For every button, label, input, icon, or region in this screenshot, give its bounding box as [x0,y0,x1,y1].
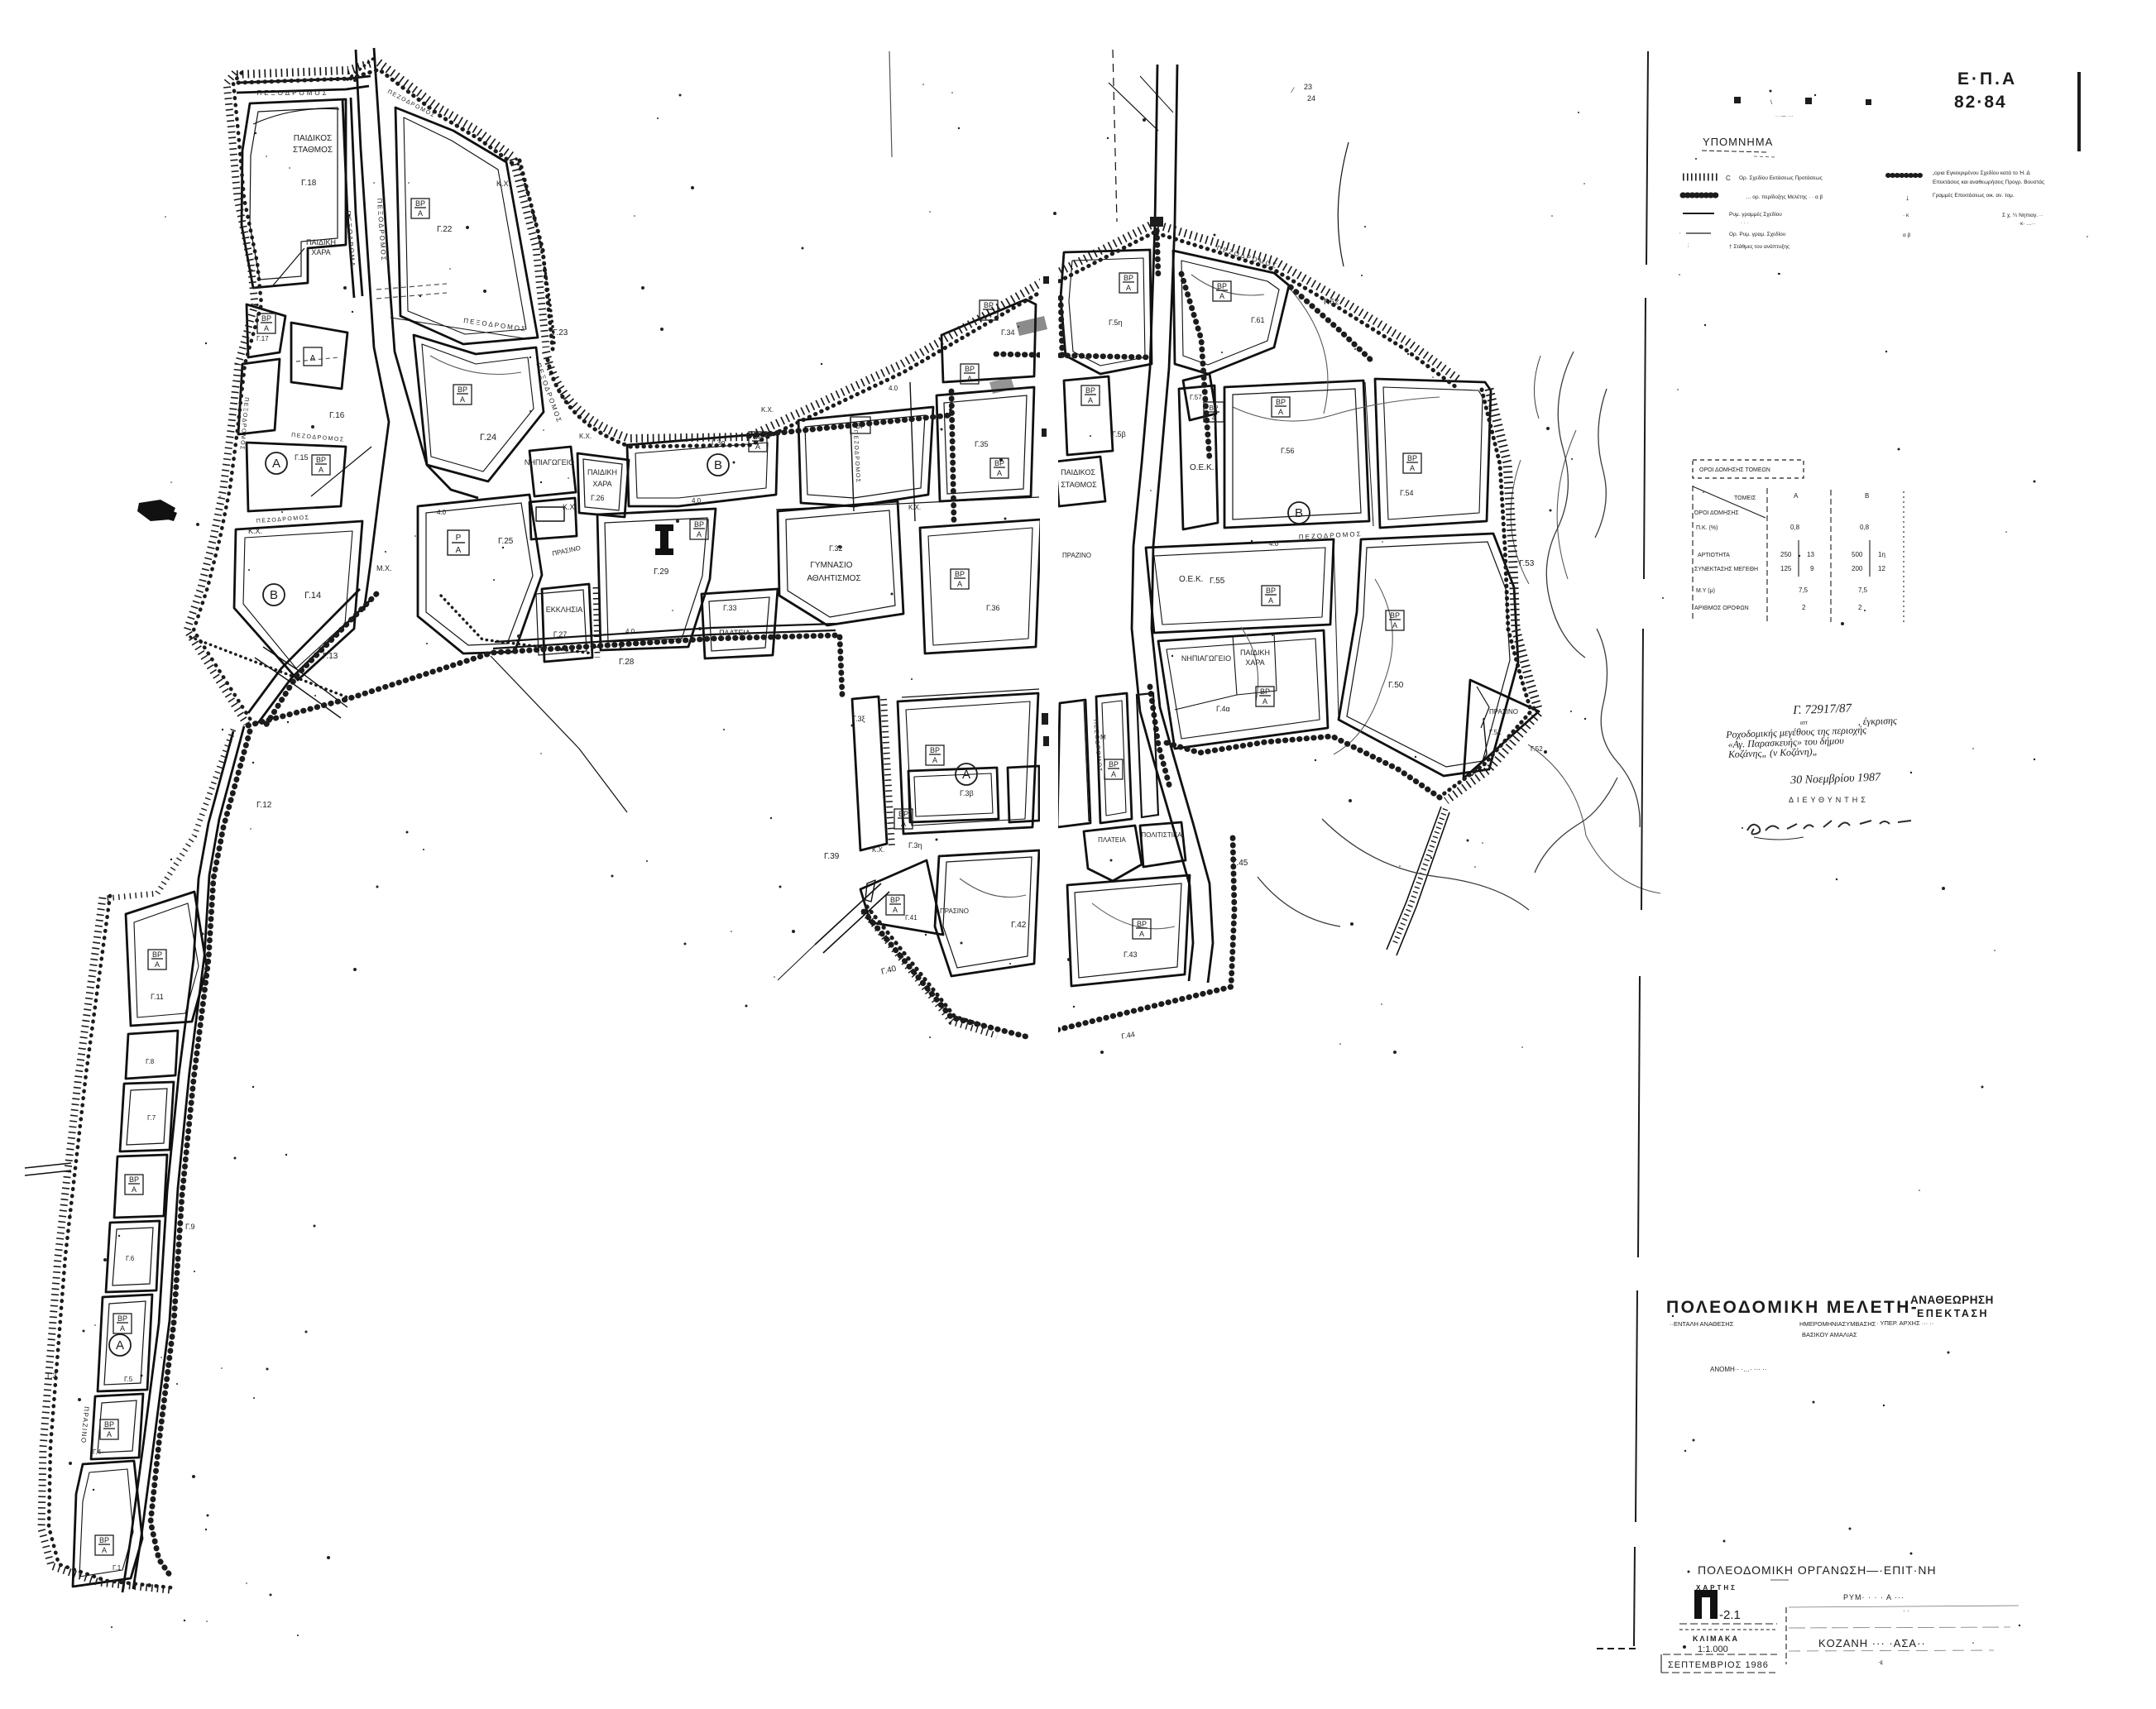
svg-text:ΠΑΙΔΙΚΗ: ΠΑΙΔΙΚΗ [1240,649,1270,657]
svg-text:ΠΑΙΔΙΚΗ: ΠΑΙΔΙΚΗ [587,468,617,476]
svg-text:Α: Α [1794,492,1799,500]
svg-text:ΑΡΙΘΜΟΣ ΟΡΟΦΩΝ: ΑΡΙΘΜΟΣ ΟΡΟΦΩΝ [1694,606,1749,611]
svg-text:125: 125 [1780,565,1792,572]
svg-text:Ορ. Σχεδίου Εκτάσεως Προτάσεως: Ορ. Σχεδίου Εκτάσεως Προτάσεως [1739,175,1823,181]
svg-text:Γ.57: Γ.57 [1190,394,1202,401]
svg-text:Γ.50: Γ.50 [1388,681,1404,690]
svg-text:ΠΑΙΔΙΚΗ: ΠΑΙΔΙΚΗ [306,238,336,247]
svg-text:Γ.13: Γ.13 [323,652,338,661]
svg-text:Κ.Χ.: Κ.Χ. [761,406,774,414]
svg-text:ΠΑΙΔΙΚΟΣ: ΠΑΙΔΙΚΟΣ [1061,468,1095,476]
svg-text:2: 2 [1802,604,1806,611]
svg-text:Γ.26: Γ.26 [591,494,604,502]
svg-text:O.E.K.: O.E.K. [1190,463,1214,472]
svg-text:Γ.5η: Γ.5η [1109,318,1122,327]
svg-text:↓: ↓ [1905,194,1909,203]
svg-text:Γ.5β: Γ.5β [1112,430,1126,438]
svg-text:ΠΛΑΤΕΙΑ: ΠΛΑΤΕΙΑ [719,629,750,637]
svg-text:Γ.28: Γ.28 [619,658,635,667]
svg-text:ΠΟΛΕΟΔΟΜΙΚΗ ΜΕΛΕΤΗ-: ΠΟΛΕΟΔΟΜΙΚΗ ΜΕΛΕΤΗ- [1666,1298,1919,1317]
svg-text:Σ χ. ¼ Νηπιαγ. ··: Σ χ. ¼ Νηπιαγ. ·· [2002,213,2043,218]
svg-text:ΣΕΠΤΕΜΒΡΙΟΣ 1986: ΣΕΠΤΕΜΒΡΙΟΣ 1986 [1668,1660,1769,1670]
svg-text:Γ.43: Γ.43 [1124,950,1137,959]
svg-text:·ε: ·ε [1878,1659,1884,1666]
svg-text:Γ.35: Γ.35 [975,440,988,448]
svg-text:M.X.: M.X. [376,564,392,572]
svg-text:Γ.22: Γ.22 [437,225,453,234]
svg-text:α β: α β [1903,232,1911,238]
svg-text:4.0: 4.0 [1269,540,1279,548]
svg-text:Π.Κ. (%): Π.Κ. (%) [1696,525,1718,531]
svg-text:Γ.17: Γ.17 [256,335,269,342]
svg-text:C: C [1726,175,1731,182]
svg-text:4.0: 4.0 [692,497,702,505]
svg-text:Γ.3β: Γ.3β [960,789,974,797]
svg-text:ΟΡΟΙ ΔΟΜΗΣΗΣ ΤΟΜΕΩΝ: ΟΡΟΙ ΔΟΜΗΣΗΣ ΤΟΜΕΩΝ [1699,467,1770,473]
svg-text:Γ.42: Γ.42 [1011,921,1027,930]
svg-text:ΣΥΝΕΚΤΑΣΗΣ ΜΕΓΕΘΗ: ΣΥΝΕΚΤΑΣΗΣ ΜΕΓΕΘΗ [1694,567,1758,572]
svg-text:Γ.33: Γ.33 [723,604,736,612]
svg-text:1:1.000: 1:1.000 [1698,1644,1728,1654]
svg-text:12: 12 [1878,565,1885,572]
svg-text:ΕΠΕΚΤΑΣΗ: ΕΠΕΚΤΑΣΗ [1917,1308,1989,1319]
svg-text:Γραμμές Επεκτάσεως οικ. αν. το: Γραμμές Επεκτάσεως οικ. αν. τομ. [1933,192,2015,199]
svg-text:ΠΟΛΙΤΙΣΤΙΚΑ: ΠΟΛΙΤΙΣΤΙΚΑ [1141,831,1182,839]
svg-text:ΧΑΡΑ: ΧΑΡΑ [311,248,330,256]
svg-text:Γ.15: Γ.15 [295,453,308,462]
svg-text:Γ.56: Γ.56 [1281,447,1294,455]
svg-text:ΕΚΚΛΗΣΙΑ: ΕΚΚΛΗΣΙΑ [546,606,583,614]
svg-text:ΚΛΙΜΑΚΑ: ΚΛΙΜΑΚΑ [1693,1635,1739,1643]
svg-text:Γ.12: Γ.12 [256,801,272,810]
svg-text:4.0: 4.0 [437,509,447,516]
svg-text:ΠΟΛΕΟΔΟΜΙΚΗ ΟΡΓΑΝΩΣΗ—·ΕΠΙΤ·ΝΗ: ΠΟΛΕΟΔΟΜΙΚΗ ΟΡΓΑΝΩΣΗ—·ΕΠΙΤ·ΝΗ [1698,1563,1937,1577]
svg-text:ΑΡΤΙΟΤΗΤΑ: ΑΡΤΙΟΤΗΤΑ [1698,553,1730,558]
svg-text:Γ.36: Γ.36 [986,604,999,612]
svg-text:Β: Β [1865,492,1869,500]
svg-text:ΠΡΑΣΙΝΟ: ΠΡΑΣΙΝΟ [1489,708,1518,716]
svg-text:Γ.39: Γ.39 [824,852,840,861]
svg-text:ΓΥΜΝΑΣΙΟ: ΓΥΜΝΑΣΙΟ [810,561,852,570]
svg-text:· ΥΠΕΡ. ΑΡΧΗΣ ··· ··: · ΥΠΕΡ. ΑΡΧΗΣ ··· ·· [1876,1319,1933,1327]
svg-text:P: P [456,534,462,543]
svg-text:Ορ. Ρυμ. γραμ. Σχεδίου: Ορ. Ρυμ. γραμ. Σχεδίου [1729,231,1786,237]
svg-text:·· ·─· ···: ·· ·─· ··· [1775,114,1794,119]
svg-text:Γ.45: Γ.45 [1233,859,1248,868]
svg-text:ʽ: ʽ [1679,233,1680,238]
svg-text:·κ· …··: ·κ· …·· [2019,221,2035,227]
svg-text:ΠΡΑΣΙΝΟ: ΠΡΑΣΙΝΟ [940,907,969,915]
svg-text:\: \ [1770,100,1772,106]
svg-text:ΠΕΞΟΔΡΟΜΟΣ: ΠΕΞΟΔΡΟΜΟΣ [256,89,328,97]
svg-text:ΧΑΡΑ: ΧΑΡΑ [1245,658,1264,667]
svg-text:Γ.5: Γ.5 [124,1376,133,1383]
svg-text:„ορια Εγκεκριμένου Σχεδίου κατ: „ορια Εγκεκριμένου Σχεδίου κατά το Ή. Δ [1933,170,2030,176]
svg-text:7,5: 7,5 [1858,586,1868,594]
svg-text:ΠΛΑΤΕΙΑ: ΠΛΑΤΕΙΑ [1098,836,1126,844]
svg-text:Γ.3: Γ.3 [47,1372,56,1380]
svg-text:Γ.55: Γ.55 [1210,577,1225,586]
svg-text:Γ.54: Γ.54 [1400,489,1413,497]
svg-text:K.X.: K.X. [496,180,510,188]
svg-text:ΔΙΕΥΘΥΝΤΗΣ: ΔΙΕΥΘΥΝΤΗΣ [1789,796,1869,804]
svg-text:Γ.3ο: Γ.3ο [711,438,725,447]
svg-text:ΝΗΠΙΑΓΩΓΕΙΟ: ΝΗΠΙΑΓΩΓΕΙΟ [525,458,574,467]
svg-text:Γ.62: Γ.62 [1324,298,1339,307]
svg-text:4.0: 4.0 [889,385,898,392]
svg-text:· κ: · κ [1903,213,1909,218]
svg-text:ΣΤΑΘΜΟΣ: ΣΤΑΘΜΟΣ [293,146,333,155]
svg-text:4.0: 4.0 [625,628,635,635]
svg-text:Κ.Χ.: Κ.Χ. [579,433,592,440]
svg-text:500: 500 [1852,551,1863,558]
svg-text:ΠΡΑΖΙΝΟ: ΠΡΑΖΙΝΟ [1062,552,1091,559]
svg-text:ΣΤΑΘΜΟΣ: ΣΤΑΘΜΟΣ [1061,481,1097,489]
svg-text:BP: BP [855,422,865,430]
svg-text:ΝΗΠΙΑΓΩΓΕΙΟ: ΝΗΠΙΑΓΩΓΕΙΟ [1181,654,1231,663]
svg-text:Γ.61: Γ.61 [1251,316,1264,324]
svg-text:Ρυμ. γραμμές Σχεδίου: Ρυμ. γραμμές Σχεδίου [1729,211,1782,218]
svg-text:ΗΜΕΡΟΜΗΝΙΑΣΥΜΒΑΣΗΣ: ΗΜΕΡΟΜΗΝΙΑΣΥΜΒΑΣΗΣ [1799,1320,1876,1328]
svg-text:ιατ: ιατ [1800,718,1809,725]
svg-text:Γ.25: Γ.25 [498,537,514,546]
svg-text:Γ.23: Γ.23 [553,328,568,337]
svg-text:· ·: · · [1903,1607,1909,1615]
svg-text:82·84: 82·84 [1954,93,2007,112]
svg-text:M: M [1100,734,1106,741]
svg-text:Γ.29: Γ.29 [654,567,669,577]
svg-text:ΌΡΟΙ ΔΌΜΗΣΗΣ: ΌΡΟΙ ΔΌΜΗΣΗΣ [1694,510,1739,516]
svg-text:… ορ. περίδοξης Μελέτης · · α: … ορ. περίδοξης Μελέτης · · α β [1746,194,1823,200]
svg-text:Γ.3η: Γ.3η [908,841,922,850]
svg-text:4: 4 [1212,414,1216,422]
svg-text:Γ.51: Γ.51 [1489,729,1502,736]
svg-text:A: A [310,354,316,363]
svg-text:† Στάθμες του ανάπτυξης: † Στάθμες του ανάπτυξης [1729,243,1789,250]
svg-text:Επεκτάσεις και αναθεωρήσεις Πρ: Επεκτάσεις και αναθεωρήσεις Προγρ. Βουστ… [1933,179,2044,185]
svg-text:0,8: 0,8 [1860,524,1870,531]
svg-text:Γ.9: Γ.9 [185,1223,194,1231]
svg-text:ΑΝΟΜΗ·· ·…· ··· ··: ΑΝΟΜΗ·· ·…· ··· ·· [1710,1366,1766,1373]
svg-text:YΠOMNHMA: YΠOMNHMA [1703,136,1773,148]
svg-text:O.E.K.: O.E.K. [1179,575,1203,584]
svg-text:ΑΝΑΘΕΩΡΗΣΗ: ΑΝΑΘΕΩΡΗΣΗ [1910,1294,1994,1306]
svg-text:K.X.: K.X. [563,503,577,511]
svg-text:ΒΑΣΙΚΟΥ ΑΜΑΛΙΑΣ: ΒΑΣΙΚΟΥ ΑΜΑΛΙΑΣ [1802,1331,1857,1338]
svg-text:ΠΑΙΔΙΚΟΣ: ΠΑΙΔΙΚΟΣ [294,134,332,143]
svg-text:Γ.34: Γ.34 [1001,328,1014,337]
svg-text:2: 2 [1858,604,1862,611]
svg-text:Γ.24: Γ.24 [480,433,496,443]
svg-text:23: 23 [1304,83,1312,91]
svg-text:Γ.16: Γ.16 [329,411,345,420]
svg-text:K.X.: K.X. [248,527,262,535]
svg-text:Γ.3ξ: Γ.3ξ [852,715,865,723]
svg-text:Γ.52: Γ.52 [1531,745,1543,753]
svg-text:ΤΟΜΕΙΣ: ΤΟΜΕΙΣ [1734,495,1756,501]
svg-text:KOZANH ··· ·ΑΣΑ··: KOZANH ··· ·ΑΣΑ·· [1818,1637,1926,1649]
svg-text:ΧΑΡΑ: ΧΑΡΑ [592,480,611,488]
svg-text:E·Π.A: E·Π.A [1957,69,2017,89]
svg-text:Γ.11: Γ.11 [151,993,164,1001]
svg-text:Γ.14: Γ.14 [304,591,321,601]
svg-text:Γ.8: Γ.8 [146,1058,155,1065]
svg-text:9: 9 [1810,565,1814,572]
svg-text:Γ.27: Γ.27 [553,630,567,639]
svg-text:Γ.4: Γ.4 [93,1448,102,1456]
svg-text:· · ·: · · · [1741,221,1748,226]
svg-text:200: 200 [1852,565,1863,572]
svg-text:-2.1: -2.1 [1719,1608,1741,1622]
svg-text:BP: BP [1210,405,1219,412]
svg-text:Γ.4α: Γ.4α [1216,705,1230,713]
svg-text:Γ.7: Γ.7 [147,1114,156,1122]
svg-text:0,8: 0,8 [1790,524,1800,531]
svg-text:Γ.1: Γ.1 [113,1564,122,1572]
svg-text:Γ.41: Γ.41 [905,914,917,922]
svg-text:Κ.Χ.: Κ.Χ. [908,504,921,511]
svg-text:Γ.18: Γ.18 [301,179,317,188]
svg-text:1η: 1η [1878,551,1885,558]
svg-text:Γ. 72917/87: Γ. 72917/87 [1792,702,1853,718]
svg-text:Γ.6: Γ.6 [126,1255,135,1262]
svg-text:ΡΥΜ· · · · Α ···: ΡΥΜ· · · · Α ··· [1843,1593,1904,1601]
svg-text:··ΕΝΤΑΛΗ ΑΝΑΘΕΣΗΣ: ··ΕΝΤΑΛΗ ΑΝΑΘΕΣΗΣ [1670,1320,1734,1328]
svg-text:Γ.53: Γ.53 [1519,559,1535,568]
svg-text:250: 250 [1780,551,1792,558]
svg-text:K.X.: K.X. [872,846,884,854]
svg-text:24: 24 [1307,94,1315,103]
svg-text:A: A [456,546,462,555]
svg-text:ΑΘΛΗΤΙΣΜΟΣ: ΑΘΛΗΤΙΣΜΟΣ [807,574,860,583]
svg-text:13: 13 [1807,551,1814,558]
svg-text:7,5: 7,5 [1799,586,1809,594]
svg-text:Μ.Υ (μ): Μ.Υ (μ) [1696,588,1715,594]
